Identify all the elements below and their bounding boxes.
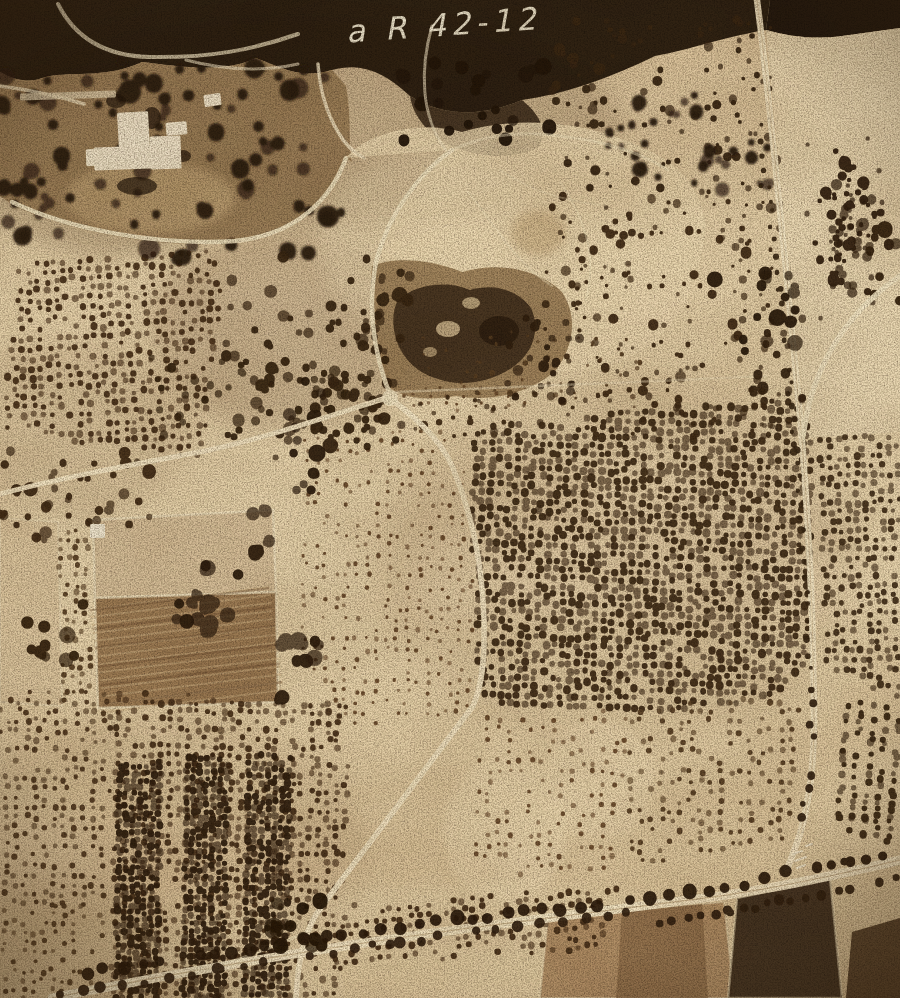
aerial-photo: a R 42-12 xyxy=(0,0,900,998)
vignette-overlay xyxy=(0,0,900,998)
aerial-photo-canvas: a R 42-12 xyxy=(0,0,900,998)
